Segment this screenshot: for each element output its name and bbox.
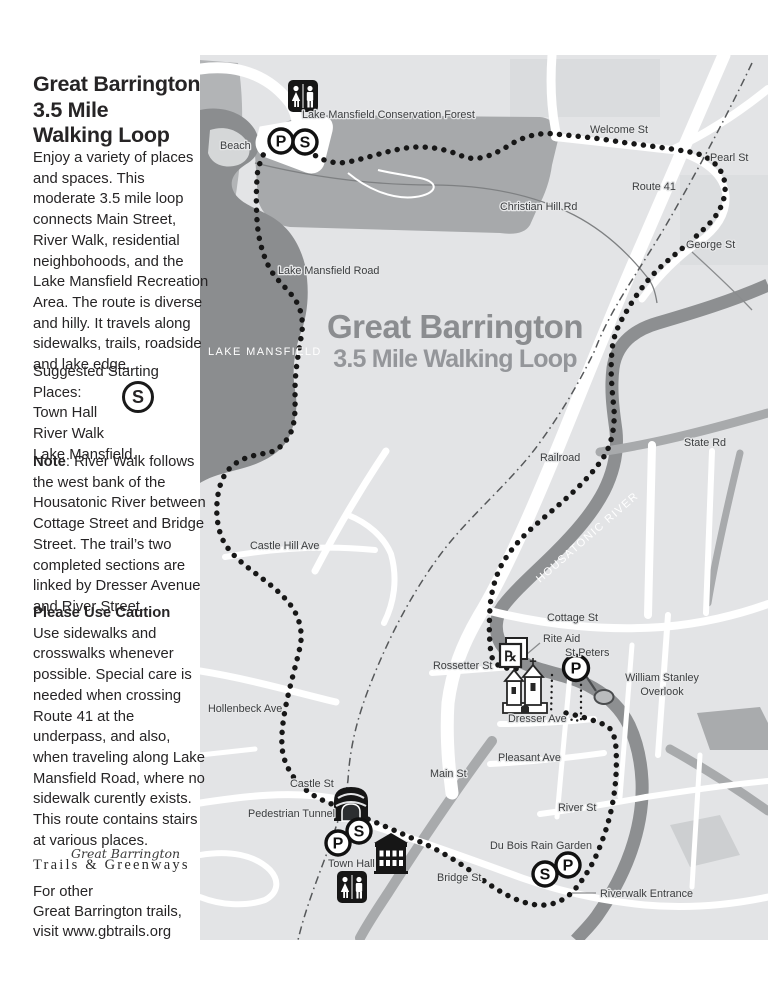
label-railroad: Railroad: [540, 452, 580, 464]
label-dresser-ave: Dresser Ave: [508, 713, 567, 725]
trails-greenways-logo: Great Barrington Trails & Greenways: [33, 848, 209, 882]
footer-text: For other Great Barrington trails, visit…: [33, 884, 209, 944]
starting-place-river-walk: River Walk: [33, 424, 209, 445]
svg-text:P: P: [563, 858, 574, 875]
note-label: Note: [33, 454, 66, 470]
label-river-st: River St: [558, 802, 596, 814]
label-lake-mansfield: LAKE MANSFIELD: [208, 346, 322, 358]
start-icon: S: [347, 819, 371, 843]
svg-text:S: S: [300, 135, 311, 152]
label-christian-hill-rd: Christian Hill Rd: [500, 201, 577, 213]
logo-serif-text: Trails & Greenways: [33, 857, 190, 874]
label-beach: Beach: [220, 140, 251, 152]
intro-paragraph: Enjoy a variety of places and spaces. Th…: [33, 148, 209, 376]
label-overlook: Overlook: [640, 686, 684, 698]
svg-text:S: S: [354, 824, 365, 841]
label-conservation-forest: Lake Mansfield Conservation Forest: [302, 109, 475, 121]
label-lake-mansfield-road: Lake Mansfield Road: [278, 265, 379, 277]
start-icon: S: [533, 862, 557, 886]
footer-line: For other: [33, 884, 209, 901]
label-route-41: Route 41: [632, 181, 676, 193]
walking-loop-map: Great Barrington 3.5 Mile Walking Loop: [200, 55, 768, 940]
parking-icon: P: [564, 656, 589, 681]
footer-line: Great Barrington trails,: [33, 904, 209, 921]
svg-text:P: P: [571, 661, 582, 678]
caution-section: Please Use Caution Use sidewalks and cro…: [33, 603, 209, 851]
svg-text:P: P: [333, 836, 344, 853]
start-icon: S: [122, 381, 154, 413]
label-pleasant-ave: Pleasant Ave: [498, 752, 561, 764]
parking-icon: P: [556, 853, 580, 877]
caution-heading: Please Use Caution: [33, 603, 209, 624]
restroom-icon: [337, 871, 367, 903]
label-george-st: George St: [686, 239, 735, 251]
sidebar: Great Barrington 3.5 Mile Walking Loop E…: [0, 0, 200, 994]
label-main-st: Main St: [430, 768, 467, 780]
svg-text:S: S: [540, 867, 551, 884]
label-rite-aid: Rite Aid: [543, 633, 580, 645]
starting-places: Suggested Starting Places: Town Hall Riv…: [33, 362, 209, 466]
label-state-rd: State Rd: [684, 437, 726, 449]
label-castle-hill-ave: Castle Hill Ave: [250, 540, 319, 552]
note-paragraph: Note: River Walk follows the west bank o…: [33, 452, 209, 618]
caution-text: Use sidewalks and crosswalks whenever po…: [33, 624, 209, 852]
label-pearl-st: Pearl St: [710, 152, 748, 164]
label-town-hall: Town Hall: [328, 858, 375, 870]
map-subtitle: 3.5 Mile Walking Loop: [333, 345, 577, 373]
page: Great Barrington 3.5 Mile Walking Loop E…: [0, 0, 768, 994]
footer-line: visit www.gbtrails.org: [33, 924, 209, 941]
note-text: : River Walk follows the west bank of th…: [33, 454, 206, 615]
label-castle-st: Castle St: [290, 778, 334, 790]
tunnel-icon: [334, 787, 368, 821]
label-william-stanley: William Stanley: [625, 672, 699, 684]
parking-icon: P: [269, 129, 293, 153]
svg-text:℞: ℞: [504, 648, 517, 664]
label-riverwalk-entrance: Riverwalk Entrance: [600, 888, 693, 900]
label-du-bois-rain-garden: Du Bois Rain Garden: [490, 840, 592, 852]
label-pedestrian-tunnel: Pedestrian Tunnel: [248, 808, 335, 820]
label-rossetter-st: Rossetter St: [433, 660, 492, 672]
start-icon: S: [293, 130, 317, 154]
label-cottage-st: Cottage St: [547, 612, 598, 624]
label-bridge-st: Bridge St: [437, 872, 481, 884]
label-welcome-st: Welcome St: [590, 124, 648, 136]
label-st-peters: St Peters: [565, 647, 610, 659]
svg-text:P: P: [276, 134, 287, 151]
starting-places-heading: Suggested Starting Places:: [33, 362, 209, 403]
label-hollenbeck-ave: Hollenbeck Ave: [208, 703, 282, 715]
map-title: Great Barrington: [327, 308, 583, 345]
page-title: Great Barrington 3.5 Mile Walking Loop: [33, 72, 209, 147]
starting-place-town-hall: Town Hall: [33, 403, 209, 424]
restroom-icon: [288, 80, 318, 112]
